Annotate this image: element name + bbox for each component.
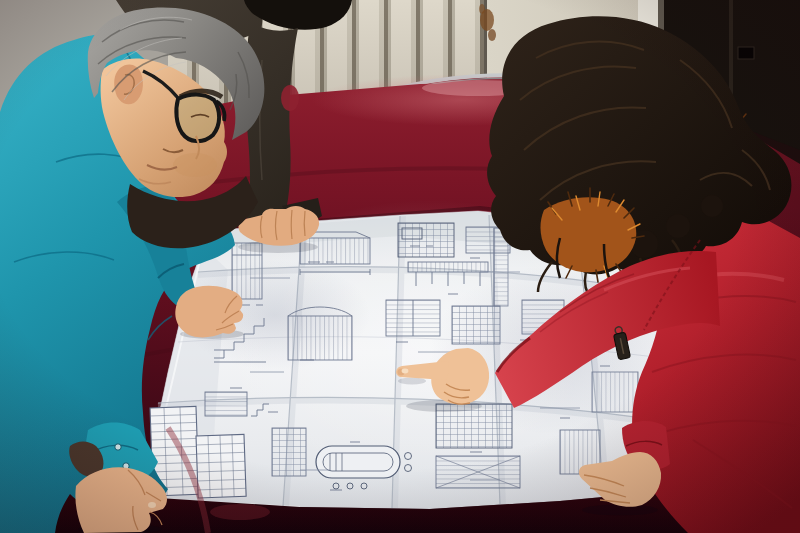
photo-scene — [0, 0, 800, 533]
photo-canvas — [0, 0, 800, 533]
vignette — [0, 0, 800, 533]
